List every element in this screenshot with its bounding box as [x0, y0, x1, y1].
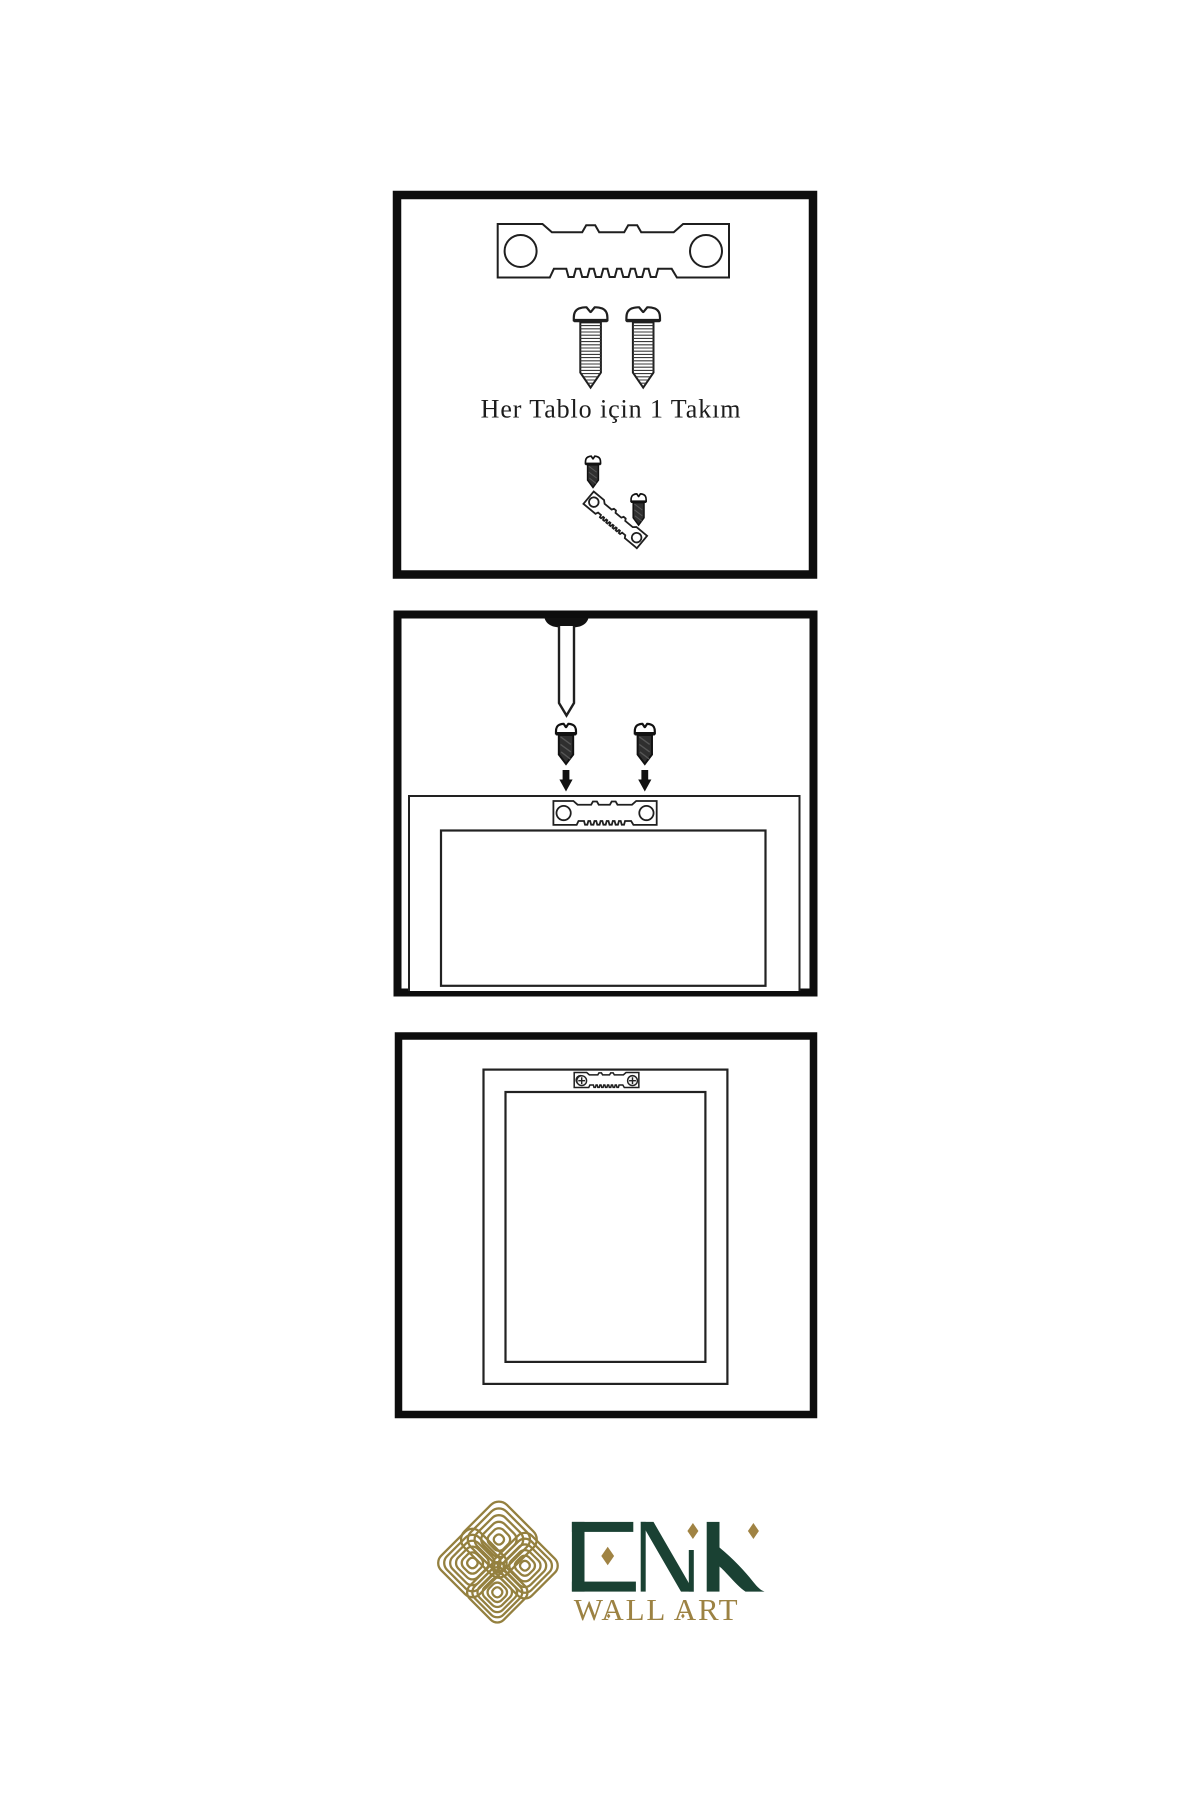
- svg-text:WALL ART: WALL ART: [574, 1592, 740, 1627]
- svg-text:Her Tablo için 1 Takım: Her Tablo için 1 Takım: [481, 395, 742, 424]
